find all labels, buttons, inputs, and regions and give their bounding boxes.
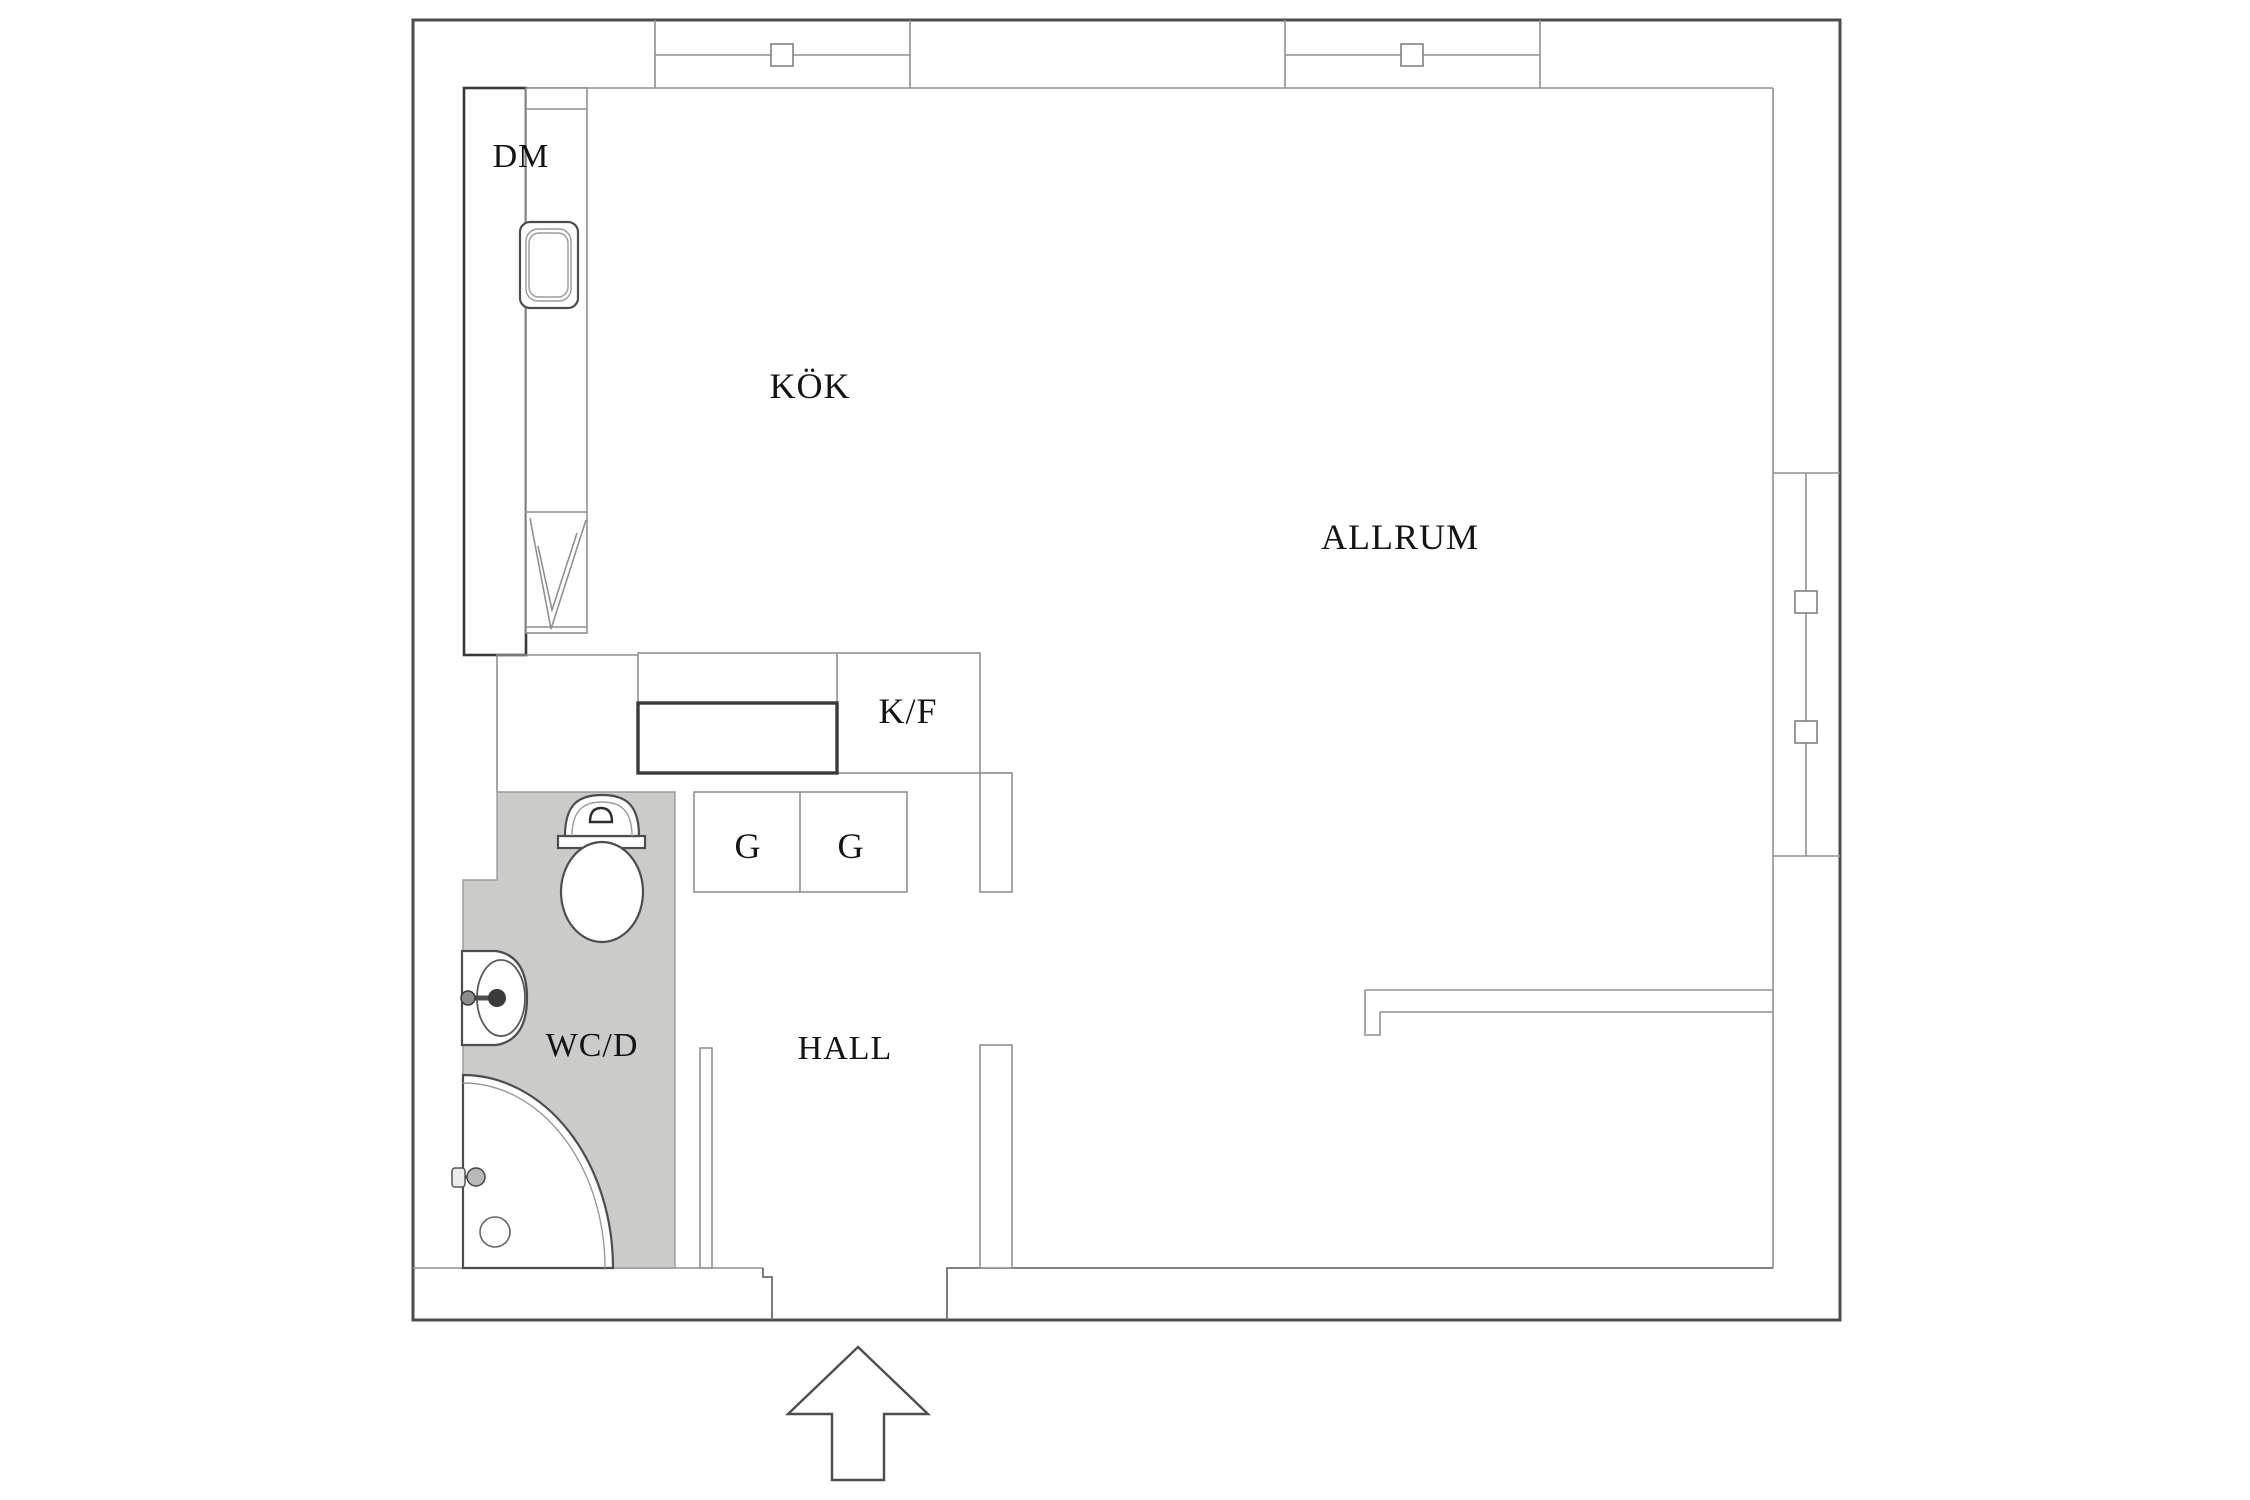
entrance-door-jamb-left — [763, 1268, 772, 1320]
shower-knob-icon — [467, 1168, 485, 1186]
dishwasher-label: DM — [493, 138, 550, 175]
living-room-label: ALLRUM — [1321, 517, 1479, 557]
window-top-1 — [655, 20, 910, 88]
wardrobe-label-1: G — [735, 826, 762, 866]
window-mullion-icon — [771, 44, 793, 66]
washbasin-icon — [461, 951, 527, 1045]
floor-drain-icon — [480, 1217, 510, 1247]
faucet-handle-icon — [461, 991, 475, 1005]
allrum-wall-stub — [1365, 990, 1773, 1035]
kitchen-bench-unit — [638, 703, 837, 773]
kitchen-south-wall — [497, 655, 638, 792]
faucet-spout-icon — [488, 989, 506, 1007]
kitchen-label: KÖK — [770, 366, 851, 406]
wall-end-hook — [1365, 990, 1380, 1035]
hall-wall-strip-lower — [980, 1045, 1012, 1268]
bathroom-door-leaf — [700, 1048, 712, 1268]
bathroom-label: WC/D — [546, 1027, 639, 1064]
wardrobes — [694, 792, 907, 892]
floor-plan-page: DM KÖK ALLRUM K/F G G WC/D HALL — [0, 0, 2250, 1500]
toilet-icon — [558, 795, 645, 942]
toilet-flush-button-icon — [590, 808, 612, 822]
hall-wall-strip-upper — [980, 773, 1012, 892]
entrance-door-jamb-right-and-inner-line — [947, 1268, 1773, 1320]
shower-mixer-icon — [452, 1168, 465, 1187]
window-mullion-icon — [1401, 44, 1423, 66]
window-mullion-icon — [1795, 591, 1817, 613]
hall-label: HALL — [798, 1030, 893, 1067]
wardrobe-label-2: G — [838, 826, 865, 866]
entrance-arrow-icon — [788, 1347, 928, 1480]
window-right-bay — [1773, 473, 1840, 856]
floor-plan-drawing: DM KÖK ALLRUM K/F G G WC/D HALL — [0, 0, 2250, 1500]
window-mullion-icon — [1795, 721, 1817, 743]
toilet-bowl — [561, 842, 643, 942]
window-top-2 — [1285, 20, 1540, 88]
fridge-freezer-label: K/F — [878, 691, 937, 731]
